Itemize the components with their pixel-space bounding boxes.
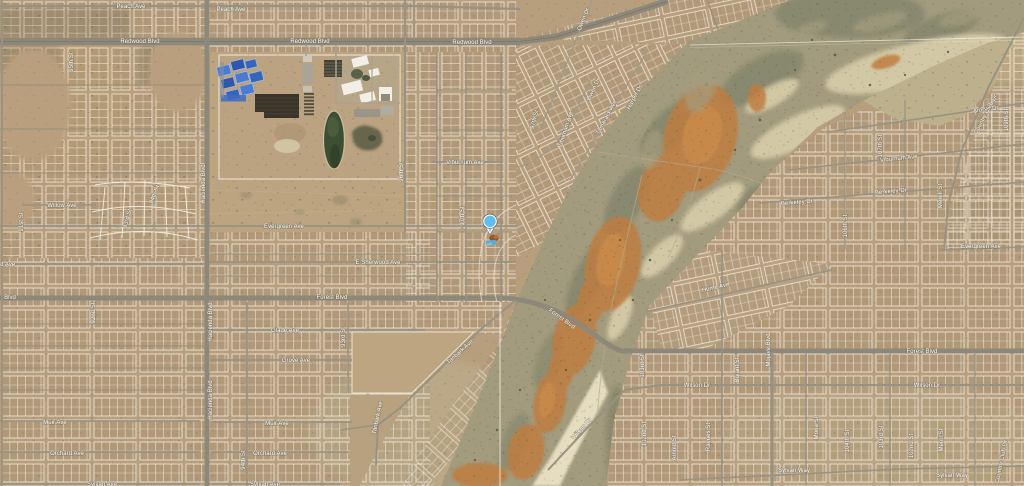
svg-text:Sylvan Ave: Sylvan Ave — [250, 482, 281, 486]
svg-text:Merrill St: Merrill St — [938, 184, 944, 208]
svg-text:Willow Ave: Willow Ave — [47, 203, 77, 209]
svg-text:Bryant St: Bryant St — [735, 357, 741, 382]
svg-text:Raynes St: Raynes St — [706, 423, 712, 451]
svg-text:Redwood Blvd: Redwood Blvd — [452, 40, 491, 46]
svg-text:Wilson Dr: Wilson Dr — [684, 383, 710, 389]
svg-text:107th St: 107th St — [878, 134, 884, 157]
svg-text:102nd St: 102nd St — [909, 434, 915, 459]
svg-text:E Sherwood Ave: E Sherwood Ave — [356, 260, 402, 266]
svg-text:Peach Ave: Peach Ave — [216, 7, 246, 13]
svg-text:Glade Ave: Glade Ave — [271, 328, 300, 334]
svg-text:104th St: 104th St — [845, 429, 851, 452]
svg-text:Peach Ave: Peach Ave — [116, 4, 146, 10]
svg-text:Mojave Blvd: Mojave Blvd — [766, 333, 772, 366]
svg-text:Forest Blvd: Forest Blvd — [907, 349, 938, 355]
svg-text:103rd St: 103rd St — [879, 425, 885, 448]
svg-text:95th St: 95th St — [69, 52, 75, 72]
svg-text:Redwood Blvd: Redwood Blvd — [120, 39, 159, 45]
svg-text:Mona St: Mona St — [814, 416, 820, 439]
svg-text:Hacienda Blvd: Hacienda Blvd — [201, 164, 207, 203]
svg-text:92nd St: 92nd St — [91, 302, 97, 323]
svg-text:Blvd: Blvd — [4, 295, 16, 301]
svg-text:96th St: 96th St — [399, 162, 405, 182]
svg-text:Sylvan Ave: Sylvan Ave — [87, 482, 118, 486]
svg-text:Merril St: Merril St — [939, 428, 945, 451]
svg-text:Hacienda Blvd: Hacienda Blvd — [208, 302, 214, 341]
svg-text:103rd St: 103rd St — [640, 354, 646, 377]
svg-text:Viburnum Ave: Viburnum Ave — [446, 160, 484, 166]
svg-text:Orchard Ave: Orchard Ave — [253, 451, 287, 457]
svg-text:93rd St: 93rd St — [341, 327, 347, 347]
svg-text:Muir Ave: Muir Ave — [265, 421, 289, 427]
svg-text:97th St: 97th St — [460, 206, 466, 226]
svg-text:Arnold St: Arnold St — [672, 435, 678, 460]
svg-text:Orchard Ave: Orchard Ave — [50, 451, 84, 457]
svg-text:Sylvan Way: Sylvan Way — [936, 473, 968, 479]
svg-text:Grove Ave: Grove Ave — [282, 358, 311, 364]
svg-text:94th St: 94th St — [241, 450, 247, 470]
svg-text:109th St: 109th St — [1004, 108, 1010, 131]
svg-text:Wilson Dr: Wilson Dr — [914, 383, 940, 389]
svg-text:Hacienda Blvd: Hacienda Blvd — [208, 380, 214, 419]
svg-text:Sylvan Way: Sylvan Way — [778, 468, 810, 474]
svg-text:102nd St: 102nd St — [642, 422, 648, 447]
svg-text:106th St: 106th St — [843, 214, 849, 237]
svg-text:Redwood Blvd: Redwood Blvd — [290, 39, 329, 45]
svg-text:Muir Ave: Muir Ave — [43, 420, 67, 426]
svg-text:od Ave: od Ave — [0, 262, 16, 268]
svg-text:Forest Blvd: Forest Blvd — [317, 295, 348, 301]
svg-text:91st St: 91st St — [19, 212, 25, 231]
svg-text:Evergreen Ave: Evergreen Ave — [264, 224, 305, 230]
svg-text:Evergreen Ave: Evergreen Ave — [961, 244, 1002, 250]
